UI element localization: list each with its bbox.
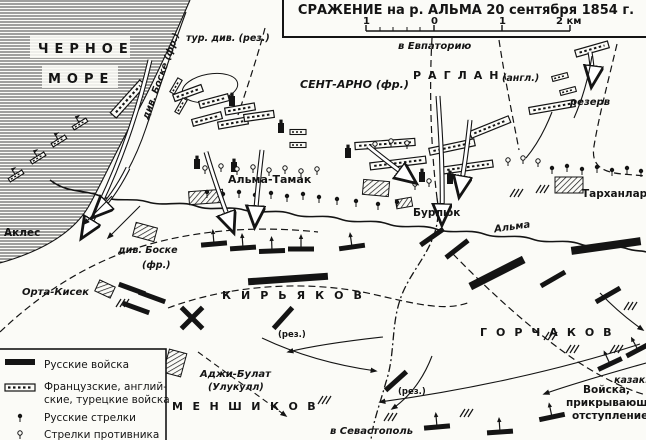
- alma-river-label: Альма: [492, 219, 531, 235]
- slope-hachure: [510, 189, 523, 197]
- slope-hachure: [566, 345, 579, 353]
- scale-tick-2km: 2 км: [556, 16, 581, 27]
- allied-unit-bar: [290, 143, 306, 148]
- ulukull-label: (Улукулл): [208, 382, 264, 393]
- track-southeast: [453, 254, 646, 395]
- infantry-column-icon: [419, 169, 425, 182]
- road-to-sevastopol: [371, 198, 438, 440]
- covering-troops-line3: отступление: [572, 410, 646, 422]
- turkish-reserve-label: тур. див. (рез.): [186, 33, 270, 44]
- british-unit-bar: [469, 116, 511, 138]
- legend-enemy-riflemen: Стрелки противника: [44, 429, 159, 440]
- russian-flag-bar: [337, 230, 365, 251]
- menshikov-label: МЕНШИКОВ: [172, 400, 325, 413]
- scale-tick-1b: 1: [499, 16, 506, 27]
- russian-unit-bar: [419, 227, 445, 247]
- village-orta-kisek: [95, 280, 115, 298]
- alma-tamak-label: Альма-Тамак: [228, 173, 312, 186]
- title-box: СРАЖЕНИЕ на р. АЛЬМА 20 сентября 1854 г.…: [283, 0, 646, 37]
- village-burlyuk: [362, 179, 389, 196]
- battle-map: ЧЕРНОЕ МОРЕ див. Боске (фр.) Альма: [0, 0, 646, 440]
- burlyuk-label: Бурлюк: [413, 207, 460, 219]
- legend-allied-bar-icon: [5, 384, 35, 391]
- reserve-label: резерв: [569, 97, 610, 108]
- scale-tick-1: 1: [363, 16, 370, 27]
- infantry-column-icon: [229, 93, 235, 106]
- to-evpatoria-label: в Евпаторию: [398, 41, 471, 52]
- sea-name-line1: ЧЕРНОЕ: [38, 42, 134, 57]
- russian-flag-bar: [536, 400, 565, 423]
- reserve-tag-2: (рез.): [398, 387, 426, 397]
- infantry-column-icon: [278, 120, 284, 133]
- russian-unit-bar: [122, 301, 150, 315]
- russian-flag-bar: [423, 411, 450, 431]
- russian-flag-bar: [288, 234, 314, 252]
- russian-unit-bar-long: [571, 237, 641, 255]
- raglan-suffix-label: (англ.): [502, 73, 539, 84]
- map-title: СРАЖЕНИЕ на р. АЛЬМА 20 сентября 1854 г.: [298, 3, 634, 18]
- orta-kisek-label: Орта-Кисек: [22, 287, 89, 298]
- slope-hachure: [460, 409, 473, 417]
- bosquet-div-line1: див. Боске: [117, 245, 178, 256]
- road-to-evpatoria: [431, 38, 437, 198]
- russian-flag-bar: [592, 345, 623, 372]
- allied-unit-bar: [199, 94, 230, 109]
- tarkhanlar-label: Тарханлар: [582, 188, 646, 200]
- track-center: [499, 40, 519, 150]
- gorchakov-label: ГОРЧАКОВ: [480, 326, 621, 339]
- allied-unit-bar: [290, 130, 306, 135]
- russian-flag-bar: [229, 232, 256, 251]
- to-sevastopol-label: в Севастополь: [330, 426, 413, 437]
- slope-hachure: [624, 302, 637, 310]
- covering-troops-line1: Войска,: [583, 384, 630, 396]
- map-canvas: ЧЕРНОЕ МОРЕ див. Боске (фр.) Альма: [0, 0, 646, 440]
- russian-flag-bar: [258, 236, 285, 254]
- allied-unit-bar: [560, 87, 577, 96]
- russian-unit-bar: [138, 290, 166, 304]
- adzhi-bulat-label: Аджи-Булат: [199, 369, 272, 380]
- legend-allied-line2: ские, турецкие войска: [44, 394, 170, 406]
- raglan-label: РАГЛАН: [413, 69, 505, 82]
- allied-unit-bar: [552, 73, 569, 82]
- legend-russian-bar-icon: [5, 359, 35, 365]
- russian-unit-bar-long: [248, 273, 328, 286]
- legend-allied-line1: Французские, англий-: [44, 381, 167, 393]
- sea-name-line2: МОРЕ: [48, 72, 114, 87]
- infantry-column-icon: [345, 145, 351, 158]
- russian-unit-bar: [444, 238, 469, 259]
- russian-unit-bar: [540, 270, 567, 288]
- russian-unit-bar-long: [468, 256, 525, 290]
- saint-arnaud-label: СЕНТ-АРНО (фр.): [300, 78, 409, 91]
- legend-russian-riflemen: Русские стрелки: [44, 412, 136, 424]
- infantry-column-icon: [194, 156, 200, 169]
- covering-troops-line2: прикрывающие: [566, 397, 646, 409]
- cossack-flag-bar: [619, 331, 646, 359]
- village-akles: [133, 222, 158, 241]
- russian-reserve-bar: [272, 306, 294, 330]
- scale-tick-0: 0: [431, 16, 438, 27]
- crossed-bars-icon: [180, 306, 205, 331]
- akles-label: Аклес: [4, 227, 40, 239]
- russian-flag-bar: [200, 228, 227, 248]
- reserve-tag-1: (рез.): [278, 330, 306, 340]
- russian-flag-bar: [486, 416, 513, 435]
- bosquet-div-line2: (фр.): [142, 260, 171, 271]
- slope-hachure: [536, 185, 549, 193]
- village-tarkhanlar: [555, 177, 583, 193]
- legend-russian-troops: Русские войска: [44, 359, 129, 371]
- road-right: [593, 44, 646, 176]
- slope-hachure: [384, 413, 397, 421]
- kiryakov-label: КИРЬЯКОВ: [222, 289, 372, 302]
- allied-unit-bar: [244, 110, 275, 121]
- map-legend: Русские войска Французские, англий- ские…: [0, 349, 170, 440]
